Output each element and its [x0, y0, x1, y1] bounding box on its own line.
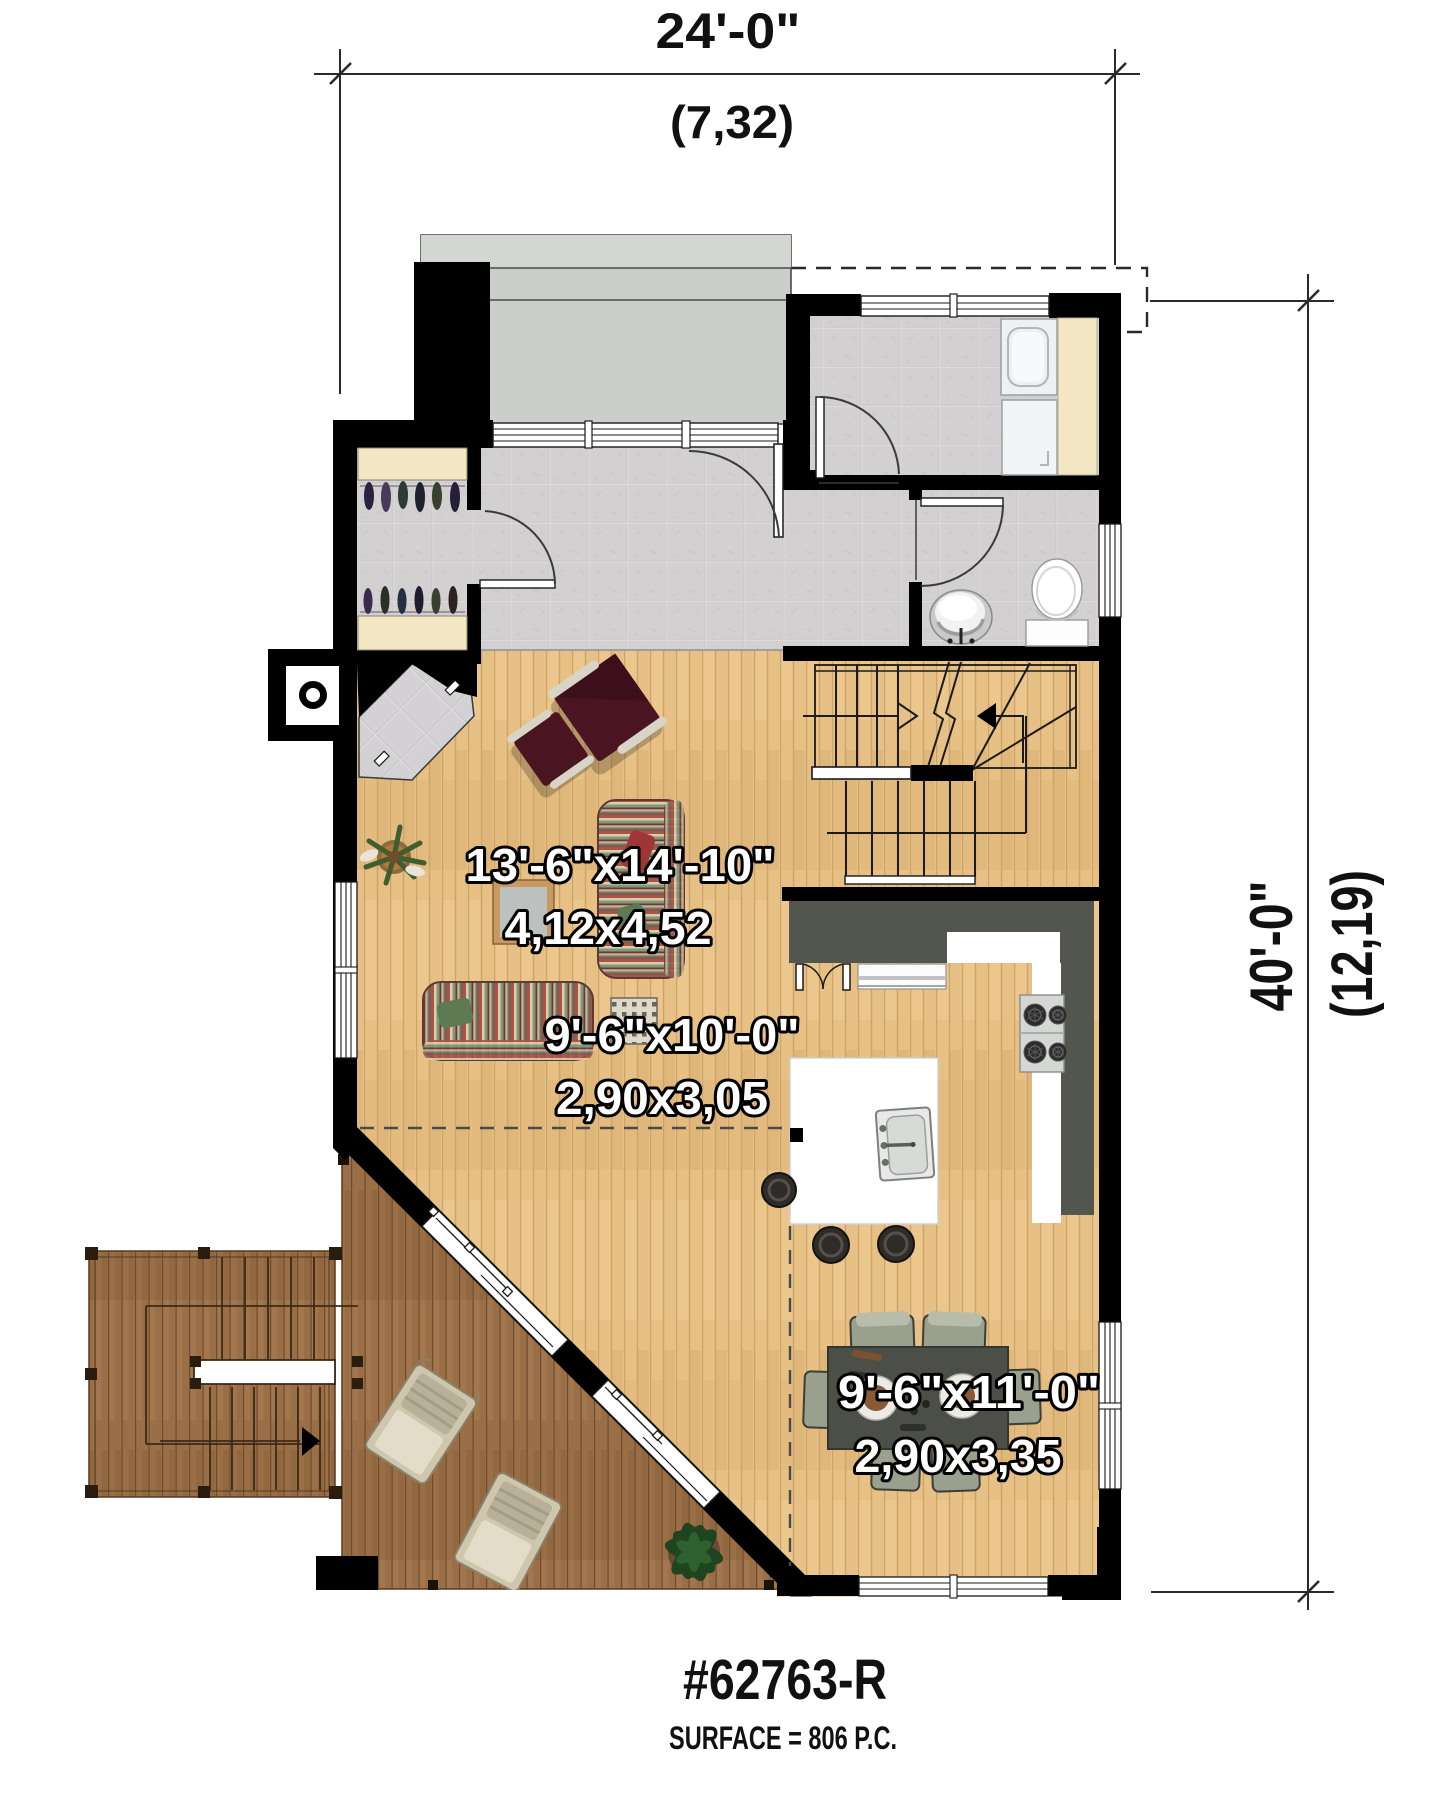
- svg-text:9'-6"x10'-0": 9'-6"x10'-0": [545, 1009, 800, 1061]
- svg-text:2,90x3,35: 2,90x3,35: [855, 1430, 1062, 1482]
- svg-text:(7,32): (7,32): [670, 96, 794, 148]
- svg-text:4,12x4,52: 4,12x4,52: [505, 902, 712, 954]
- svg-text:2,90x3,05: 2,90x3,05: [556, 1072, 768, 1124]
- svg-text:(12,19): (12,19): [1320, 870, 1385, 1018]
- svg-text:SURFACE = 806 P.C.: SURFACE = 806 P.C.: [669, 1720, 897, 1756]
- svg-text:40'-0": 40'-0": [1238, 881, 1305, 1012]
- svg-text:#62763-R: #62763-R: [683, 1648, 887, 1712]
- svg-text:9'-6"x11'-0": 9'-6"x11'-0": [838, 1366, 1100, 1418]
- svg-text:13'-6"x14'-10": 13'-6"x14'-10": [466, 839, 775, 891]
- svg-text:24'-0": 24'-0": [656, 3, 801, 59]
